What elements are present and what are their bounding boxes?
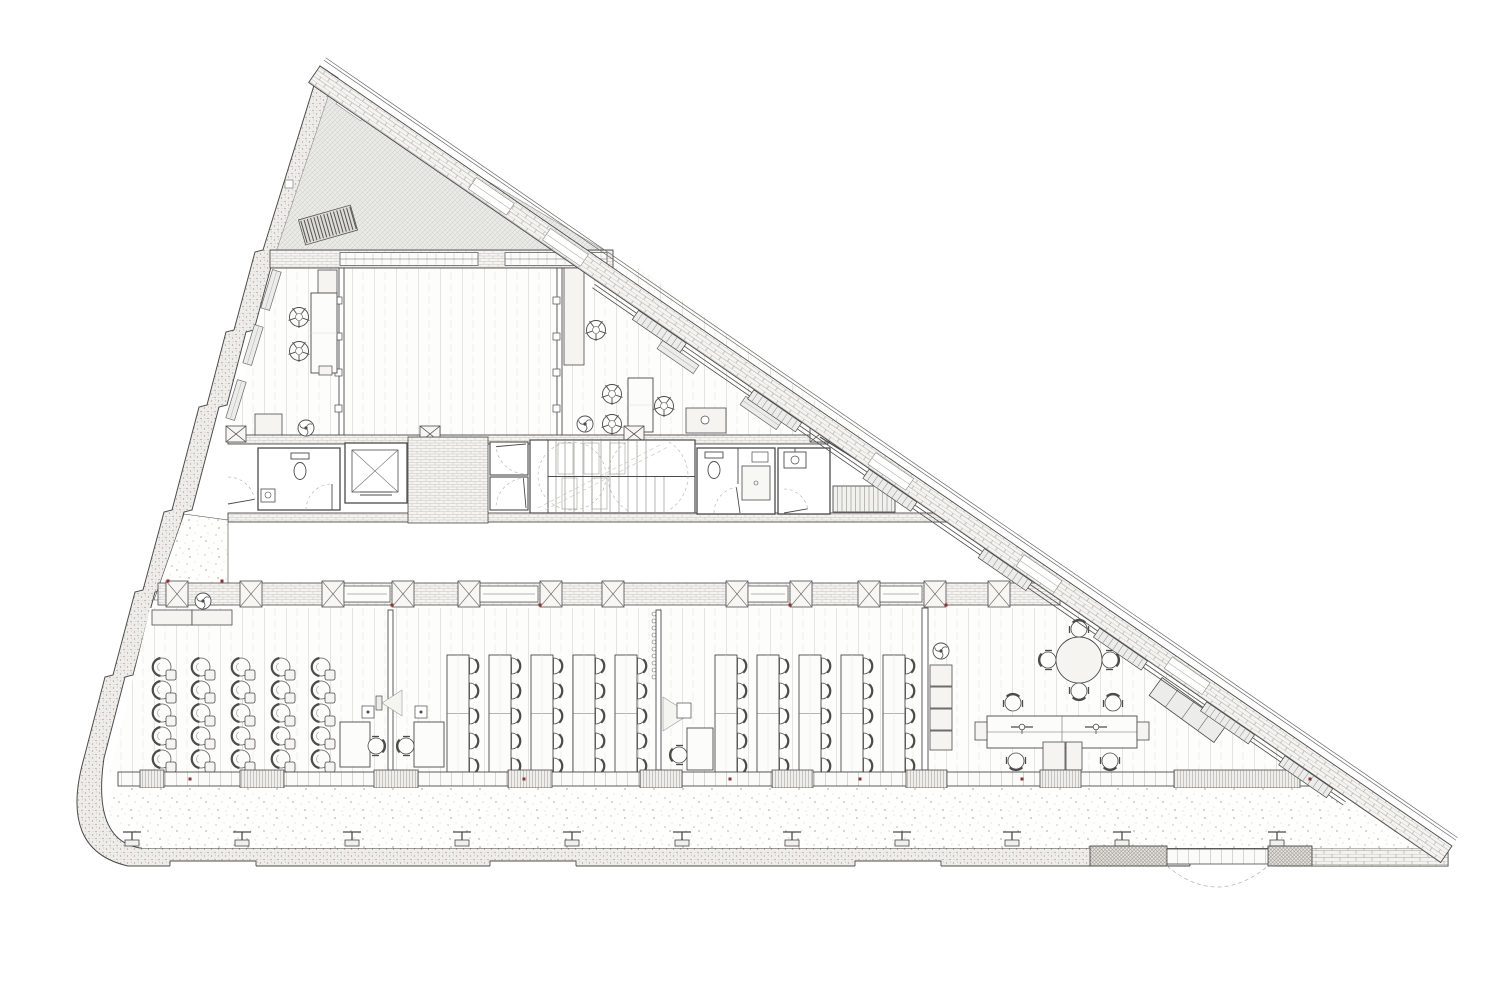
- ceiling-fan-symbol: [195, 593, 211, 609]
- utility-room: [778, 448, 830, 514]
- table-chair: [738, 733, 747, 749]
- table-chair: [780, 683, 789, 699]
- ceiling-fan-symbol: [298, 420, 314, 436]
- ceiling-fan-symbol: [577, 416, 593, 432]
- elevator-shaft: [345, 443, 407, 503]
- wall-pier: [602, 581, 624, 607]
- wall-pier: [540, 581, 562, 607]
- ceiling-fan-symbol: [933, 643, 949, 659]
- floor-plan-svg: [0, 0, 1500, 1000]
- table-chair: [906, 658, 915, 674]
- table-chair: [554, 658, 563, 674]
- door-swing: [228, 477, 255, 504]
- table-chair: [864, 658, 873, 674]
- table-chair: [906, 708, 915, 724]
- scissor-stair: [530, 436, 695, 516]
- table-chair: [638, 733, 647, 749]
- table-chair: [822, 658, 831, 674]
- table-chair: [512, 708, 521, 724]
- table-chair: [470, 658, 479, 674]
- wall-pier: [226, 426, 246, 442]
- wc-room: [697, 448, 775, 514]
- table-chair: [864, 683, 873, 699]
- table-chair: [822, 683, 831, 699]
- table-chair: [822, 733, 831, 749]
- table-chair: [554, 683, 563, 699]
- table-chair: [638, 658, 647, 674]
- table-chair: [780, 733, 789, 749]
- table-chair: [596, 733, 605, 749]
- table-chair: [822, 708, 831, 724]
- wall-pier: [458, 581, 480, 607]
- wall-pier: [988, 581, 1010, 607]
- table-chair: [638, 708, 647, 724]
- wall-pier: [322, 581, 344, 607]
- wall-pier: [240, 581, 262, 607]
- table-chair: [512, 733, 521, 749]
- table-chair: [512, 683, 521, 699]
- table-chair: [470, 708, 479, 724]
- south-terrace: [104, 788, 1421, 848]
- table-chair: [512, 658, 521, 674]
- table-chair: [780, 708, 789, 724]
- table-chair: [596, 658, 605, 674]
- table-chair: [470, 733, 479, 749]
- table-chair: [596, 708, 605, 724]
- table-chair: [738, 658, 747, 674]
- wall-pier: [858, 581, 880, 607]
- floor-plan-canvas: [0, 0, 1500, 1000]
- wall-pier: [166, 581, 188, 607]
- table-chair: [906, 733, 915, 749]
- table-chair: [864, 733, 873, 749]
- table-chair: [554, 733, 563, 749]
- wc-room: [258, 448, 340, 510]
- table-chair: [470, 683, 479, 699]
- table-chair: [906, 683, 915, 699]
- wall-pier: [924, 581, 946, 607]
- table-chair: [738, 683, 747, 699]
- wall-pier: [790, 581, 812, 607]
- table-chair: [738, 708, 747, 724]
- table-chair: [596, 683, 605, 699]
- table-chair: [780, 658, 789, 674]
- wall-pier: [392, 581, 414, 607]
- wall-pier: [726, 581, 748, 607]
- table-chair: [554, 708, 563, 724]
- table-chair: [864, 708, 873, 724]
- table-chair: [638, 683, 647, 699]
